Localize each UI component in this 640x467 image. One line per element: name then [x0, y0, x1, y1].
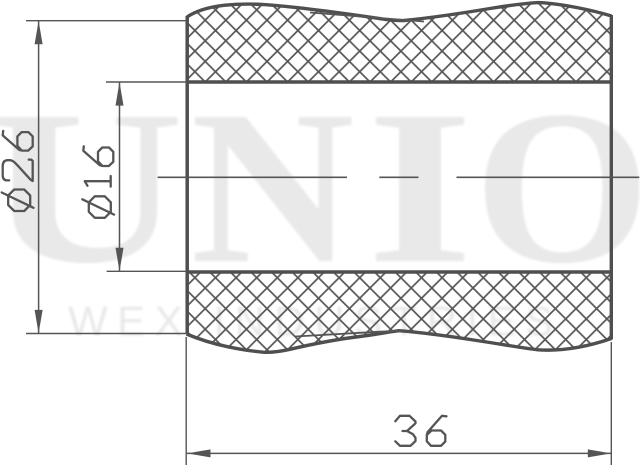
svg-text:U: U: [0, 65, 184, 309]
